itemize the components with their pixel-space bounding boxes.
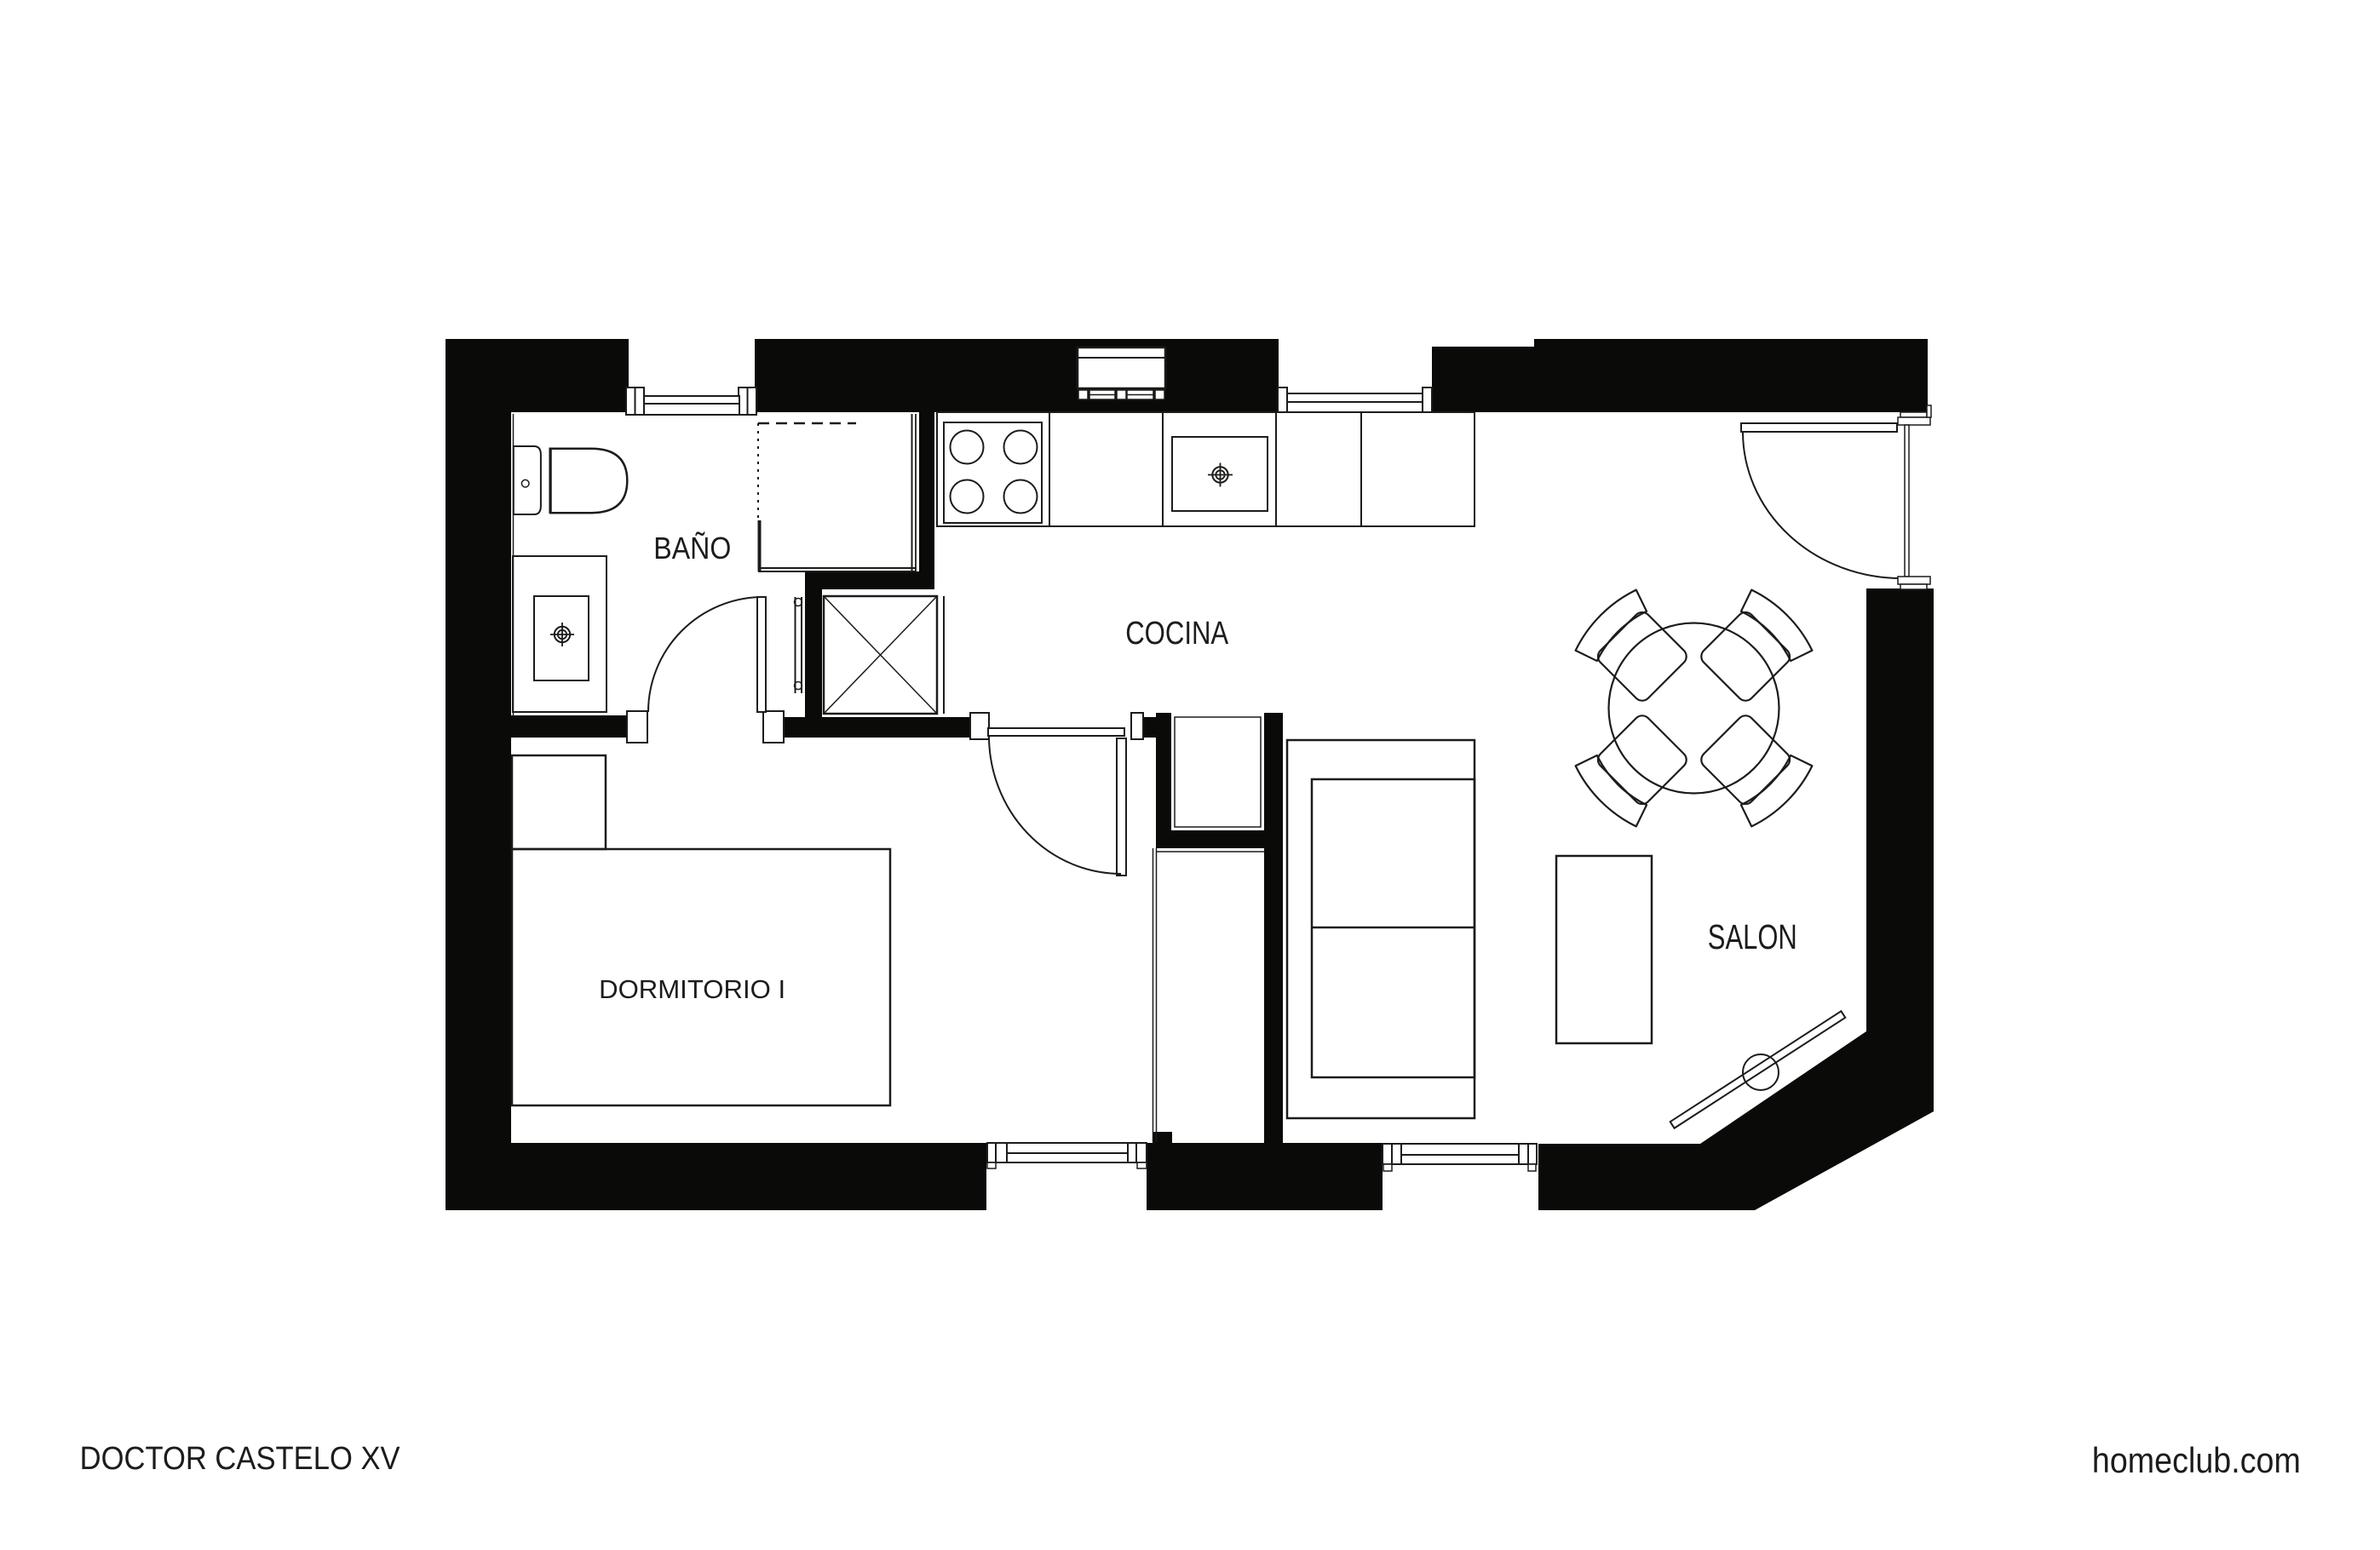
- svg-text:COCINA: COCINA: [1125, 616, 1229, 652]
- svg-text:DOCTOR CASTELO XV: DOCTOR CASTELO XV: [80, 1441, 401, 1477]
- svg-text:SALON: SALON: [1708, 917, 1797, 956]
- svg-text:BAÑO: BAÑO: [653, 531, 731, 565]
- svg-text:homeclub.com: homeclub.com: [2092, 1440, 2301, 1480]
- svg-text:DORMITORIO I: DORMITORIO I: [599, 974, 785, 1004]
